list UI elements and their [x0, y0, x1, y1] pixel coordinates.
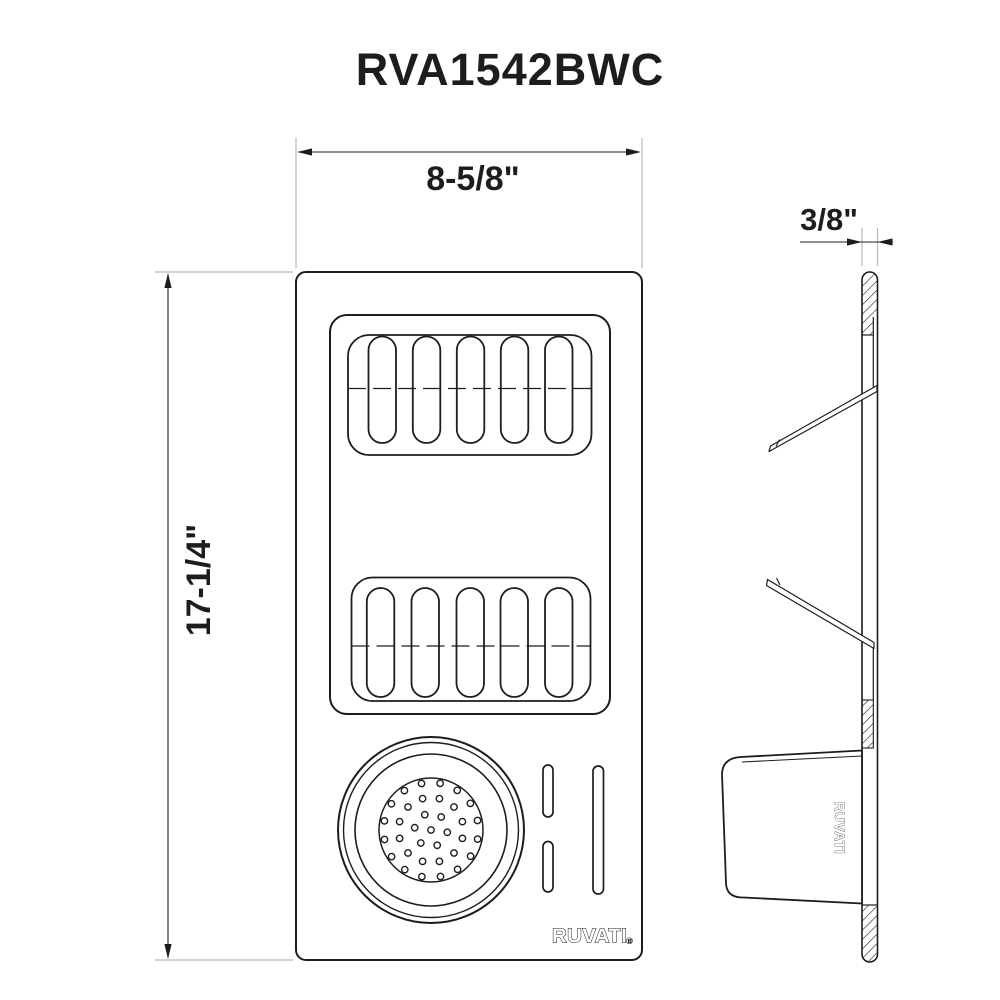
colander-hole — [388, 853, 394, 859]
side-view: RUVATI — [722, 272, 878, 962]
colander-hole — [401, 787, 407, 793]
colander-hole — [437, 780, 443, 786]
hatch-section-middle — [862, 700, 873, 748]
colander-hole — [422, 812, 428, 818]
colander-hole — [451, 850, 457, 856]
colander-hole — [402, 866, 408, 872]
dimension-arrow-right — [878, 238, 893, 245]
wire-support-lower — [767, 580, 875, 649]
dimension-arrow-left — [847, 238, 862, 245]
colander-hole — [418, 780, 424, 786]
colander-hole — [381, 818, 387, 824]
colander-hole — [434, 842, 440, 848]
technical-drawing-canvas: RVA1542BWC 8-5/8" 17-1/4" 3/8" — [0, 0, 1000, 1000]
colander-hole — [381, 836, 387, 842]
colander-hole — [396, 818, 402, 824]
width-dimension-label: 8-5/8" — [426, 160, 520, 198]
colander-hole — [438, 814, 444, 820]
technical-drawing-page: RVA1542BWC 8-5/8" 17-1/4" 3/8" — [0, 0, 1000, 1000]
dimension-arrow-left — [297, 148, 312, 155]
colander-hole — [459, 835, 465, 841]
wire-support-upper — [769, 386, 877, 452]
colander-hole — [388, 801, 394, 807]
colander-hole — [418, 840, 424, 846]
side-panel-outline — [862, 272, 878, 962]
dimension-arrow-top — [164, 273, 171, 288]
height-dimension-label: 17-1/4" — [180, 524, 218, 637]
colander-hole — [396, 835, 402, 841]
colander-hole — [436, 858, 442, 864]
thickness-dimension-label: 3/8" — [800, 202, 858, 237]
hatch-section-bottom — [862, 905, 878, 962]
width-dimension: 8-5/8" — [296, 138, 642, 268]
colander-hole — [412, 825, 418, 831]
registered-mark: ® — [626, 936, 633, 947]
colander-hole — [419, 858, 425, 864]
colander-hole — [437, 873, 443, 879]
colander-hole — [444, 829, 450, 835]
side-logo: RUVATI — [832, 801, 847, 854]
colander-hole — [459, 818, 465, 824]
plan-logo: RUVATI. — [552, 925, 633, 948]
colander-hole — [419, 873, 425, 879]
thickness-dimension: 3/8" — [800, 202, 893, 266]
height-dimension: 17-1/4" — [155, 272, 293, 960]
colander-hole — [474, 817, 480, 823]
page-title: RVA1542BWC — [356, 44, 664, 95]
plan-view: RUVATI. ® — [296, 272, 642, 960]
colander-hole — [454, 866, 460, 872]
colander-hole — [467, 800, 473, 806]
colander-hole — [451, 804, 457, 810]
colander-hole — [436, 795, 442, 801]
wire-end-tick — [777, 578, 781, 585]
colander-hole — [467, 853, 473, 859]
colander-hole — [428, 827, 434, 833]
colander-hole — [419, 795, 425, 801]
colander-hole — [405, 850, 411, 856]
colander-hole — [405, 804, 411, 810]
dimension-arrow-right — [626, 148, 641, 155]
colander-hole — [454, 787, 460, 793]
colander-hole — [474, 836, 480, 842]
dimension-arrow-bottom — [164, 944, 171, 959]
